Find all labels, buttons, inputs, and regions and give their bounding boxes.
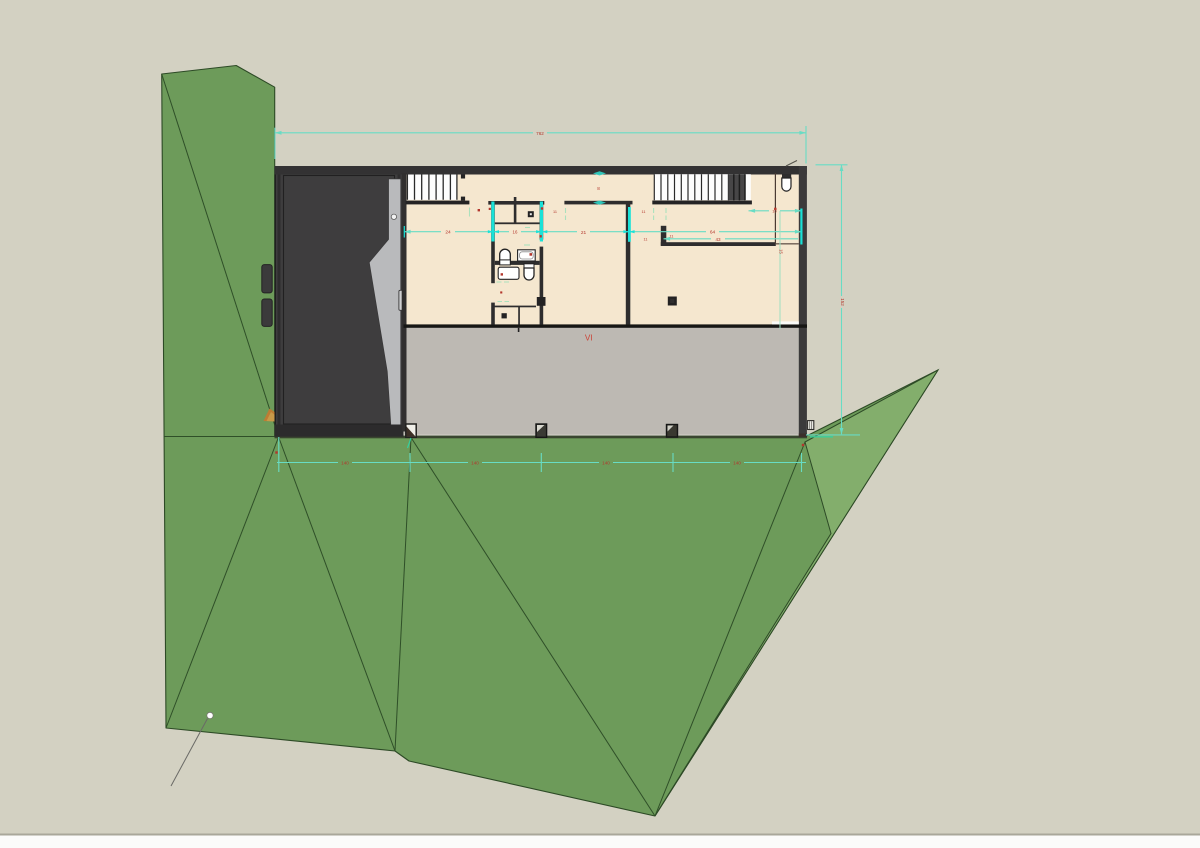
- svg-text:140: 140: [471, 460, 479, 465]
- svg-text:140: 140: [341, 460, 349, 465]
- svg-text:8: 8: [597, 186, 600, 191]
- svg-text:762: 762: [536, 131, 544, 136]
- svg-text:11: 11: [644, 238, 648, 242]
- svg-text:140: 140: [733, 460, 741, 465]
- svg-text:11: 11: [553, 210, 557, 214]
- svg-text:140: 140: [602, 460, 610, 465]
- svg-text:43: 43: [715, 237, 721, 242]
- svg-text:11: 11: [670, 234, 674, 238]
- svg-text:15: 15: [779, 249, 784, 254]
- svg-text:152: 152: [840, 298, 845, 306]
- svg-text:24: 24: [445, 230, 451, 236]
- svg-text:64: 64: [710, 230, 716, 236]
- svg-text:11: 11: [642, 210, 646, 214]
- svg-text:21: 21: [581, 230, 587, 236]
- svg-text:16: 16: [513, 229, 518, 234]
- svg-text:VI: VI: [585, 334, 593, 343]
